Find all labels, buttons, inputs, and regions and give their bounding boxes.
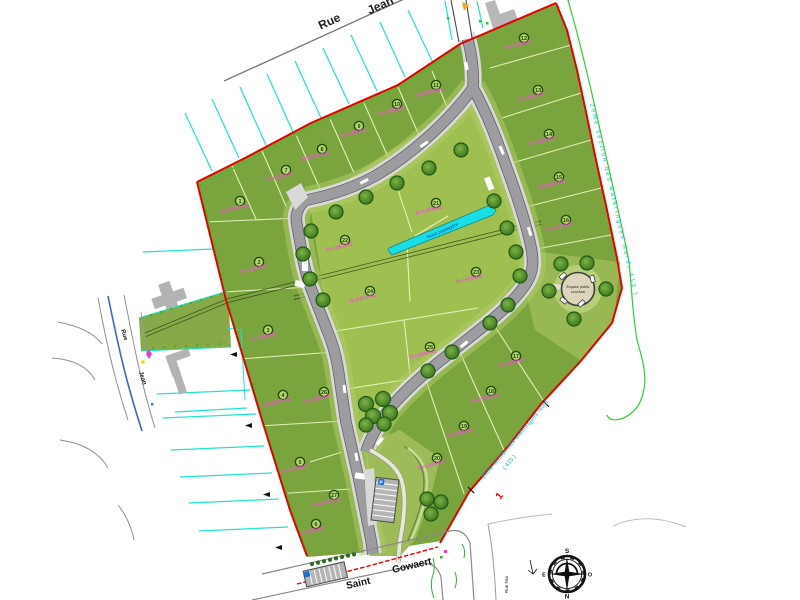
svg-text:convivial: convivial: [571, 290, 585, 294]
svg-text:N: N: [565, 594, 570, 600]
svg-text:Espace public: Espace public: [567, 285, 590, 289]
svg-text:O: O: [588, 573, 593, 579]
svg-text:Rue Nxx: Rue Nxx: [504, 575, 509, 593]
svg-text:E: E: [542, 573, 546, 579]
svg-text:S: S: [565, 548, 570, 555]
